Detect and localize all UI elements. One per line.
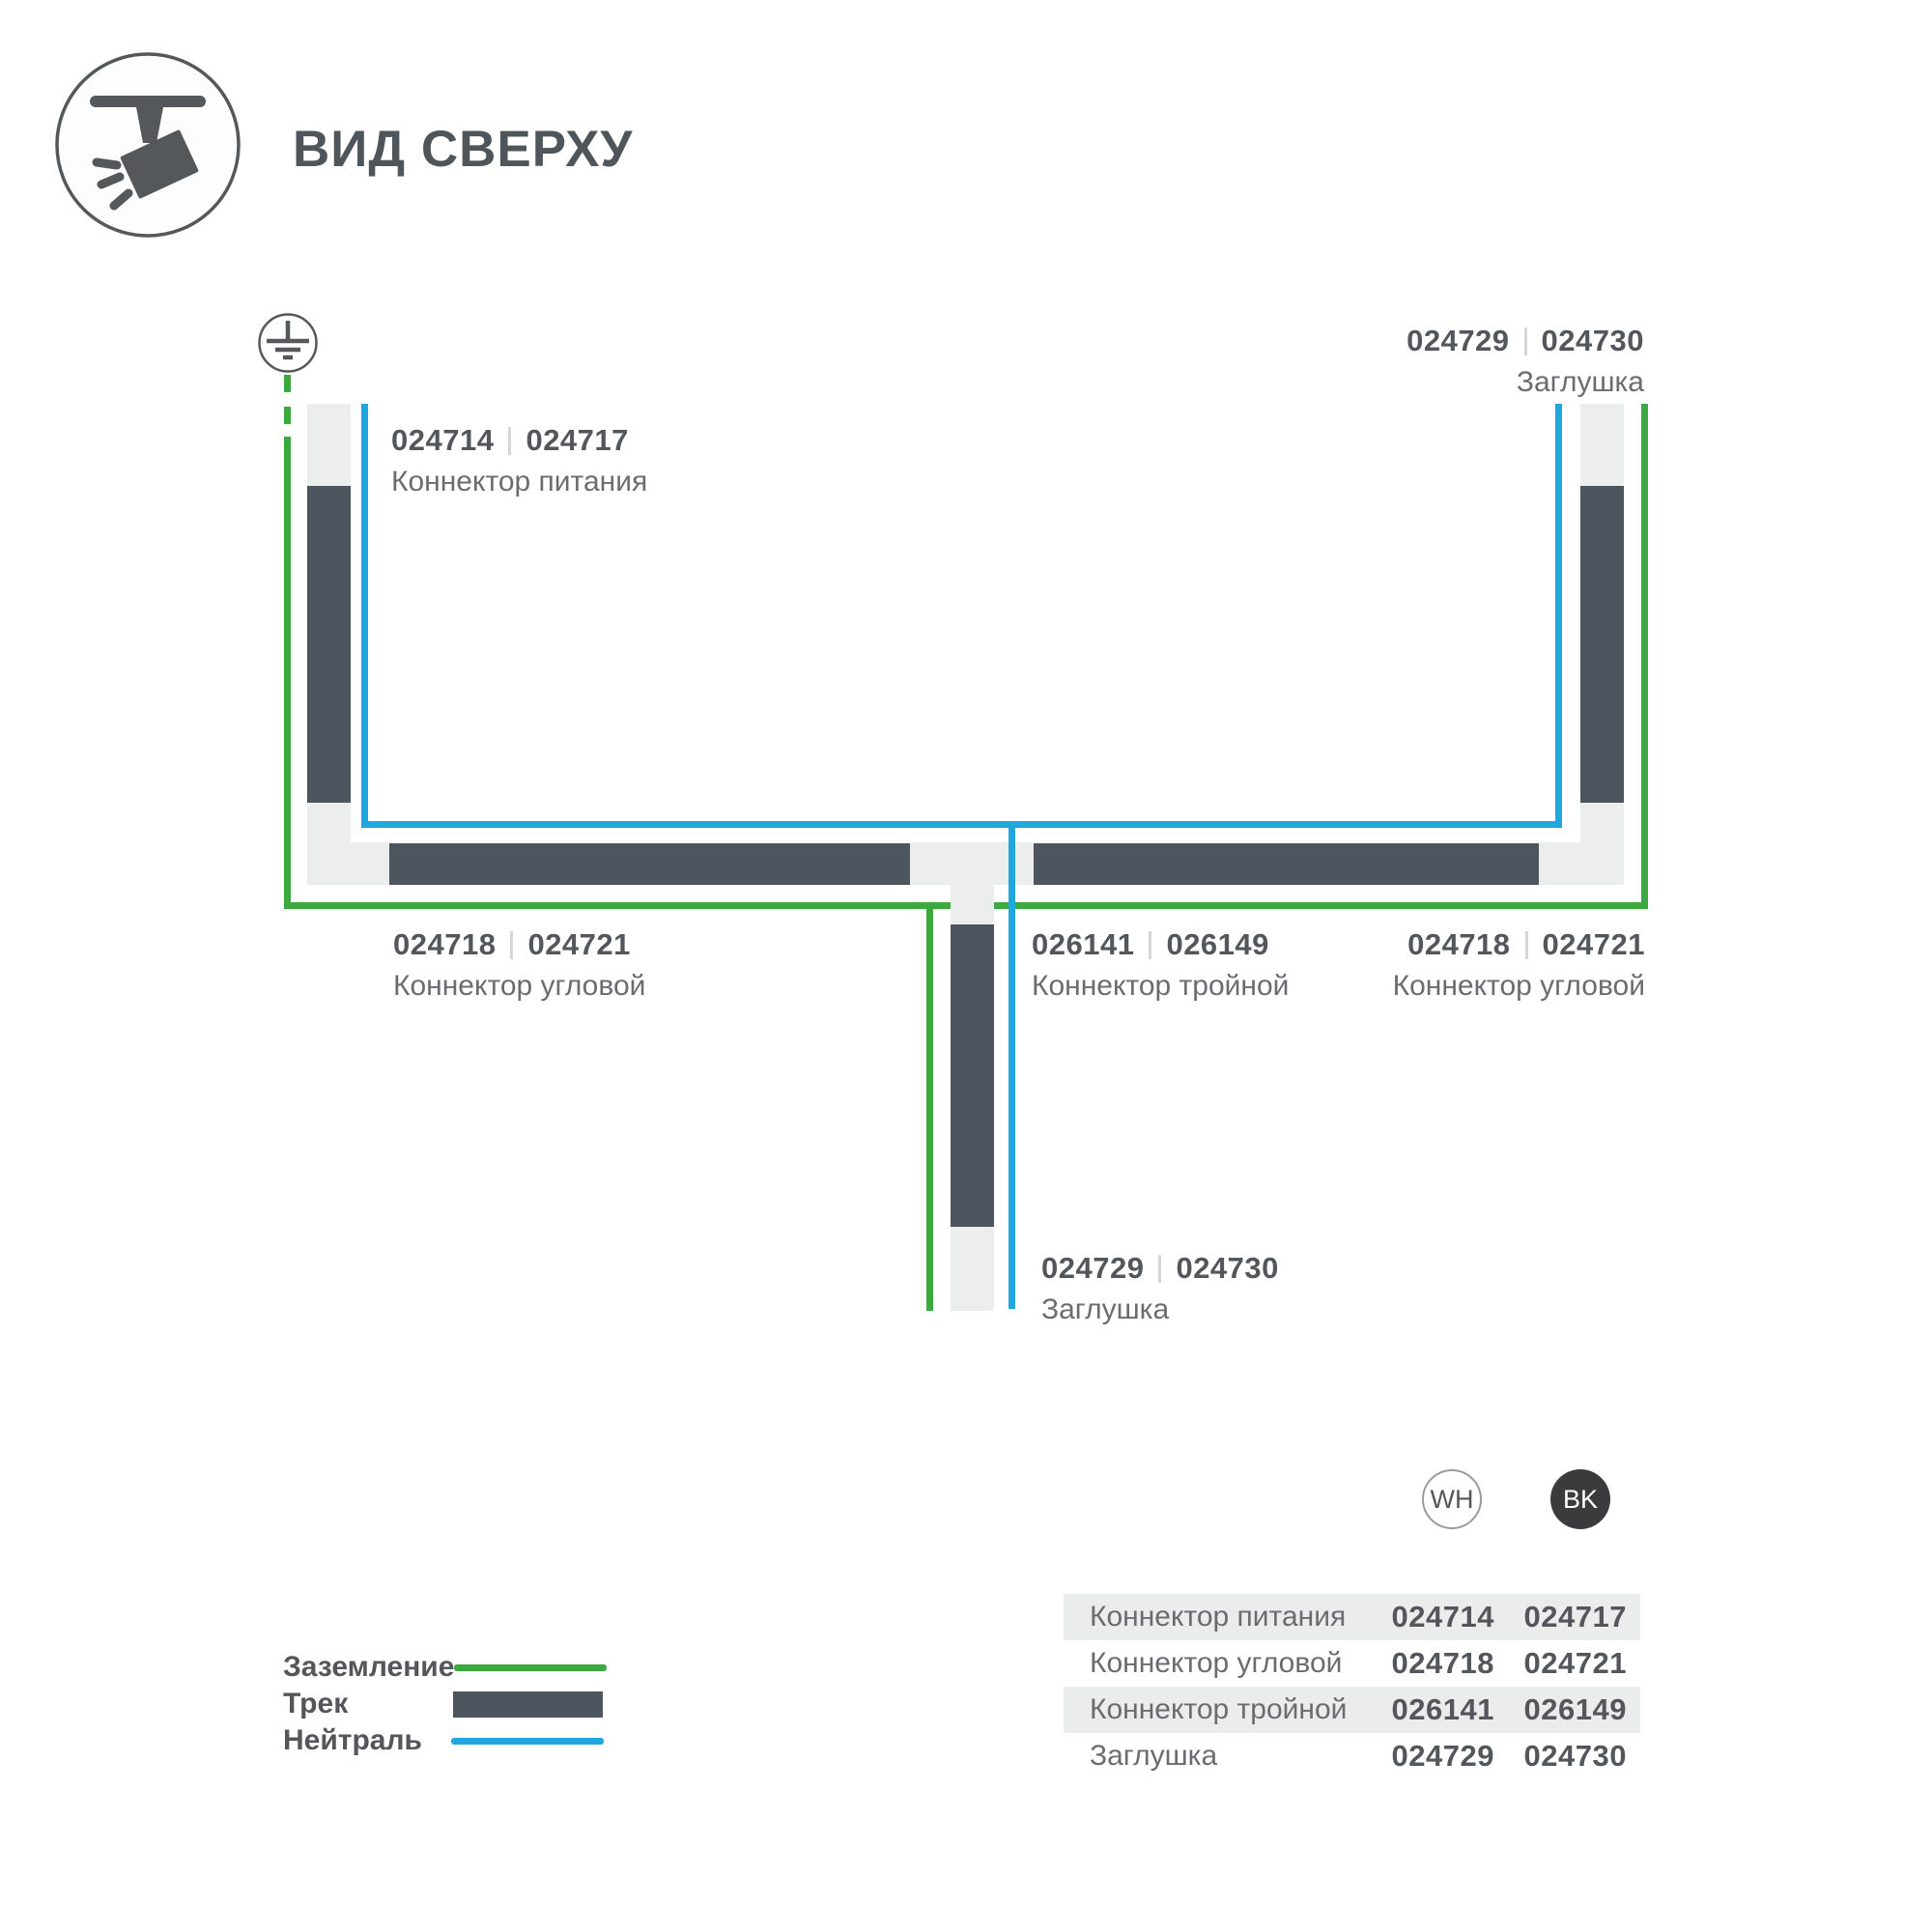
code-bk: 024721 bbox=[1543, 927, 1645, 962]
label-name: Коннектор угловой bbox=[1393, 970, 1645, 1003]
track-spotlight-icon bbox=[53, 50, 242, 240]
corner-connector-right-piece-arm bbox=[1539, 842, 1580, 885]
code-bk: 024730 bbox=[1176, 1251, 1278, 1286]
code-wh: 024718 bbox=[1407, 927, 1510, 962]
neutral-line-swatch bbox=[451, 1738, 604, 1745]
ground-wire-bottom-right bbox=[994, 902, 1648, 909]
track-segment-tee-drop bbox=[951, 924, 994, 1227]
legend-item-track: Трек bbox=[283, 1686, 604, 1722]
code-wh: 026141 bbox=[1032, 927, 1134, 962]
endcap-top-piece bbox=[1580, 404, 1624, 486]
track-bar-swatch bbox=[451, 1691, 604, 1718]
label-name: Коннектор угловой bbox=[393, 970, 645, 1003]
ground-wire-bottom-left bbox=[284, 902, 951, 909]
code-separator bbox=[1158, 1255, 1161, 1283]
table-row: Коннектор тройной 026141 026149 bbox=[1064, 1687, 1640, 1733]
neutral-wire-tee-drop bbox=[1009, 821, 1015, 1309]
endcap-bottom-piece bbox=[951, 1227, 994, 1311]
ground-wire-tee-drop bbox=[926, 902, 933, 1311]
variant-label: WH bbox=[1431, 1485, 1474, 1515]
label-codes: 024729 024730 bbox=[1406, 324, 1644, 358]
neutral-wire-right-vertical bbox=[1555, 404, 1562, 828]
code-wh: 024729 bbox=[1406, 324, 1509, 358]
label-codes: 024718 024721 bbox=[393, 927, 645, 962]
ground-wire-left-vertical bbox=[284, 437, 291, 909]
label-tee-connector: 026141 026149 Коннектор тройной bbox=[1032, 927, 1289, 1003]
row-name: Коннектор питания bbox=[1090, 1601, 1350, 1634]
label-name: Коннектор питания bbox=[391, 466, 647, 498]
neutral-wire-horizontal bbox=[361, 821, 1562, 828]
page-title: ВИД СВЕРХУ bbox=[293, 120, 633, 179]
page: ВИД СВЕРХУ 024 bbox=[0, 0, 1932, 1932]
variant-label: BK bbox=[1563, 1485, 1598, 1515]
corner-connector-left-piece-arm bbox=[351, 842, 389, 885]
corner-connector-left-piece bbox=[307, 803, 351, 885]
label-endcap-top: 024729 024730 Заглушка bbox=[1406, 324, 1644, 399]
variant-badge-bk: BK bbox=[1550, 1469, 1610, 1529]
label-codes: 024718 024721 bbox=[1393, 927, 1645, 962]
label-name: Заглушка bbox=[1406, 366, 1644, 399]
row-name: Коннектор тройной bbox=[1090, 1693, 1350, 1726]
row-code-bk: 026149 bbox=[1494, 1692, 1627, 1727]
earth-ground-icon bbox=[257, 312, 319, 374]
track-segment-right-vertical bbox=[1580, 486, 1624, 803]
label-name: Коннектор тройной bbox=[1032, 970, 1289, 1003]
row-code-bk: 024730 bbox=[1494, 1739, 1627, 1774]
row-code-bk: 024721 bbox=[1494, 1646, 1627, 1681]
row-code-wh: 024729 bbox=[1350, 1739, 1494, 1774]
code-separator bbox=[1149, 931, 1151, 959]
ground-line-swatch bbox=[454, 1664, 607, 1671]
label-codes: 024714 024717 bbox=[391, 423, 647, 458]
label-corner-left: 024718 024721 Коннектор угловой bbox=[393, 927, 645, 1003]
row-code-wh: 024714 bbox=[1350, 1600, 1494, 1634]
track-segment-left-vertical bbox=[307, 486, 351, 803]
legend-label: Трек bbox=[283, 1688, 348, 1720]
row-name: Коннектор угловой bbox=[1090, 1647, 1350, 1680]
code-bk: 024721 bbox=[527, 927, 630, 962]
code-bk: 024717 bbox=[526, 423, 628, 458]
row-code-bk: 024717 bbox=[1494, 1600, 1627, 1634]
code-separator bbox=[508, 427, 511, 455]
label-name: Заглушка bbox=[1041, 1293, 1279, 1326]
track-segment-bottom-left bbox=[389, 843, 910, 885]
label-corner-right: 024718 024721 Коннектор угловой bbox=[1393, 927, 1645, 1003]
ground-wire-right-vertical bbox=[1641, 404, 1648, 909]
legend-item-ground: Заземление bbox=[283, 1649, 604, 1686]
power-connector-piece bbox=[307, 404, 351, 486]
label-endcap-bottom: 024729 024730 Заглушка bbox=[1041, 1251, 1279, 1326]
row-code-wh: 024718 bbox=[1350, 1646, 1494, 1681]
corner-connector-right-piece bbox=[1580, 803, 1624, 885]
legend-label: Нейтраль bbox=[283, 1724, 422, 1757]
code-wh: 024714 bbox=[391, 423, 494, 458]
code-bk: 026149 bbox=[1166, 927, 1268, 962]
legend-label: Заземление bbox=[283, 1651, 454, 1684]
neutral-wire-left-vertical bbox=[361, 404, 368, 828]
table-row: Коннектор угловой 024718 024721 bbox=[1064, 1640, 1640, 1687]
variant-badge-wh: WH bbox=[1422, 1469, 1482, 1529]
legend-item-neutral: Нейтраль bbox=[283, 1722, 604, 1759]
product-table: Коннектор питания 024714 024717 Коннекто… bbox=[1064, 1594, 1640, 1779]
label-codes: 026141 026149 bbox=[1032, 927, 1289, 962]
code-wh: 024718 bbox=[393, 927, 496, 962]
table-row: Коннектор питания 024714 024717 bbox=[1064, 1594, 1640, 1640]
ground-wire-dash-1 bbox=[284, 375, 291, 392]
label-codes: 024729 024730 bbox=[1041, 1251, 1279, 1286]
code-wh: 024729 bbox=[1041, 1251, 1144, 1286]
code-separator bbox=[1524, 327, 1527, 355]
code-bk: 024730 bbox=[1542, 324, 1644, 358]
code-separator bbox=[1525, 931, 1528, 959]
label-power-connector: 024714 024717 Коннектор питания bbox=[391, 423, 647, 498]
tee-connector-stem bbox=[951, 885, 994, 924]
code-separator bbox=[510, 931, 513, 959]
row-name: Заглушка bbox=[1090, 1740, 1350, 1773]
track-segment-bottom-right bbox=[1034, 843, 1539, 885]
table-row: Заглушка 024729 024730 bbox=[1064, 1733, 1640, 1779]
row-code-wh: 026141 bbox=[1350, 1692, 1494, 1727]
ground-wire-dash-2 bbox=[284, 407, 291, 424]
